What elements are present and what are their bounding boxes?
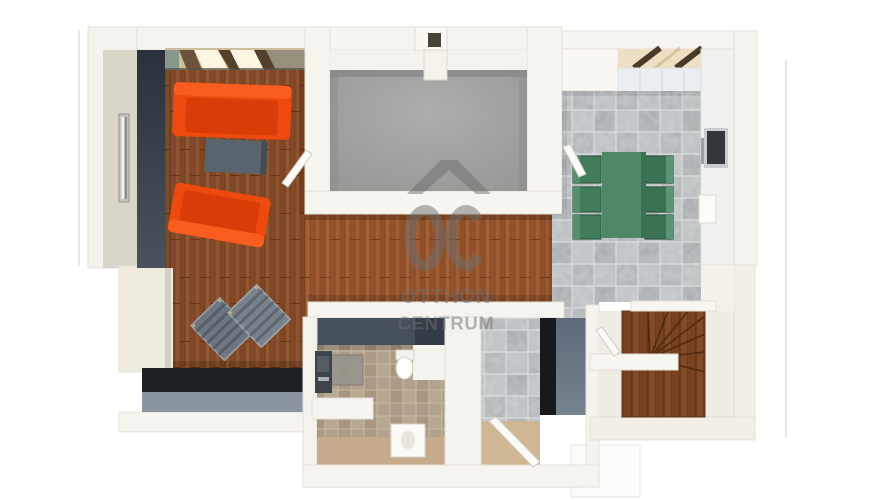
svg-text:OTTHON: OTTHON (401, 286, 491, 308)
svg-text:CENTRUM: CENTRUM (398, 313, 495, 334)
